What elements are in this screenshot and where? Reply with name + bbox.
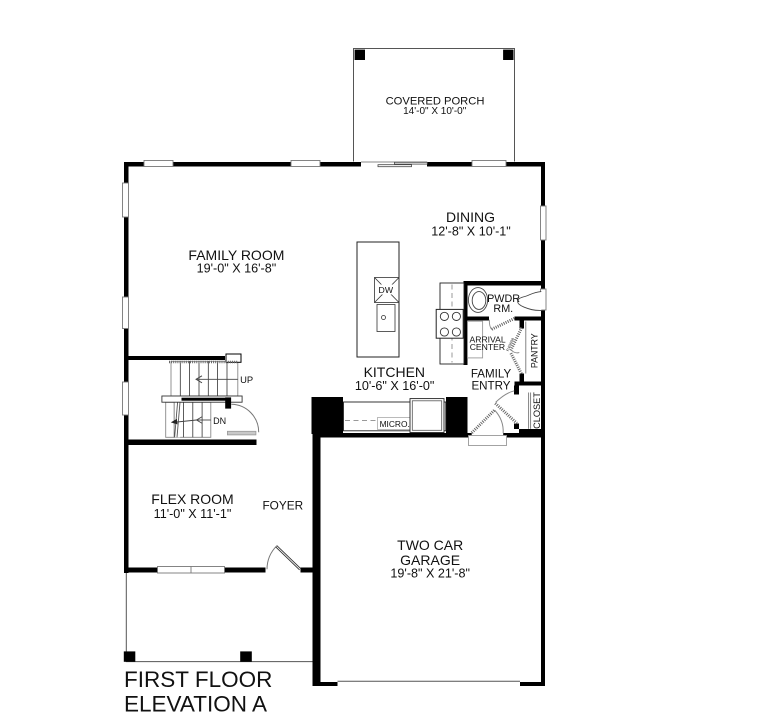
svg-text:FAMILY ROOM: FAMILY ROOM (188, 247, 284, 263)
svg-text:KITCHEN: KITCHEN (364, 364, 425, 380)
svg-text:ELEVATION A: ELEVATION A (124, 692, 267, 717)
svg-text:RM.: RM. (493, 303, 513, 315)
svg-text:FOYER: FOYER (262, 499, 303, 513)
svg-text:19'-0" X 16'-8": 19'-0" X 16'-8" (197, 262, 277, 276)
svg-text:CENTER: CENTER (470, 342, 505, 352)
svg-text:PANTRY: PANTRY (529, 333, 539, 368)
svg-text:ENTRY: ENTRY (471, 380, 510, 393)
svg-text:CLOSET: CLOSET (532, 392, 542, 429)
svg-text:19'-8" X 21'-8": 19'-8" X 21'-8" (390, 566, 470, 580)
svg-text:DW: DW (379, 285, 394, 295)
svg-text:UP: UP (240, 374, 253, 385)
svg-text:TWO CAR: TWO CAR (397, 537, 463, 553)
svg-text:DINING: DINING (446, 209, 495, 225)
svg-text:14'-0" X 10'-0": 14'-0" X 10'-0" (403, 106, 467, 117)
svg-text:FIRST FLOOR: FIRST FLOOR (124, 667, 272, 692)
svg-text:DN: DN (213, 416, 226, 426)
svg-text:MICRO.: MICRO. (380, 419, 410, 429)
svg-text:11'-0" X 11'-1": 11'-0" X 11'-1" (154, 507, 232, 521)
svg-text:10'-6" X 16'-0": 10'-6" X 16'-0" (355, 379, 435, 393)
svg-text:FLEX ROOM: FLEX ROOM (151, 491, 233, 507)
svg-text:12'-8" X 10'-1": 12'-8" X 10'-1" (431, 225, 511, 239)
